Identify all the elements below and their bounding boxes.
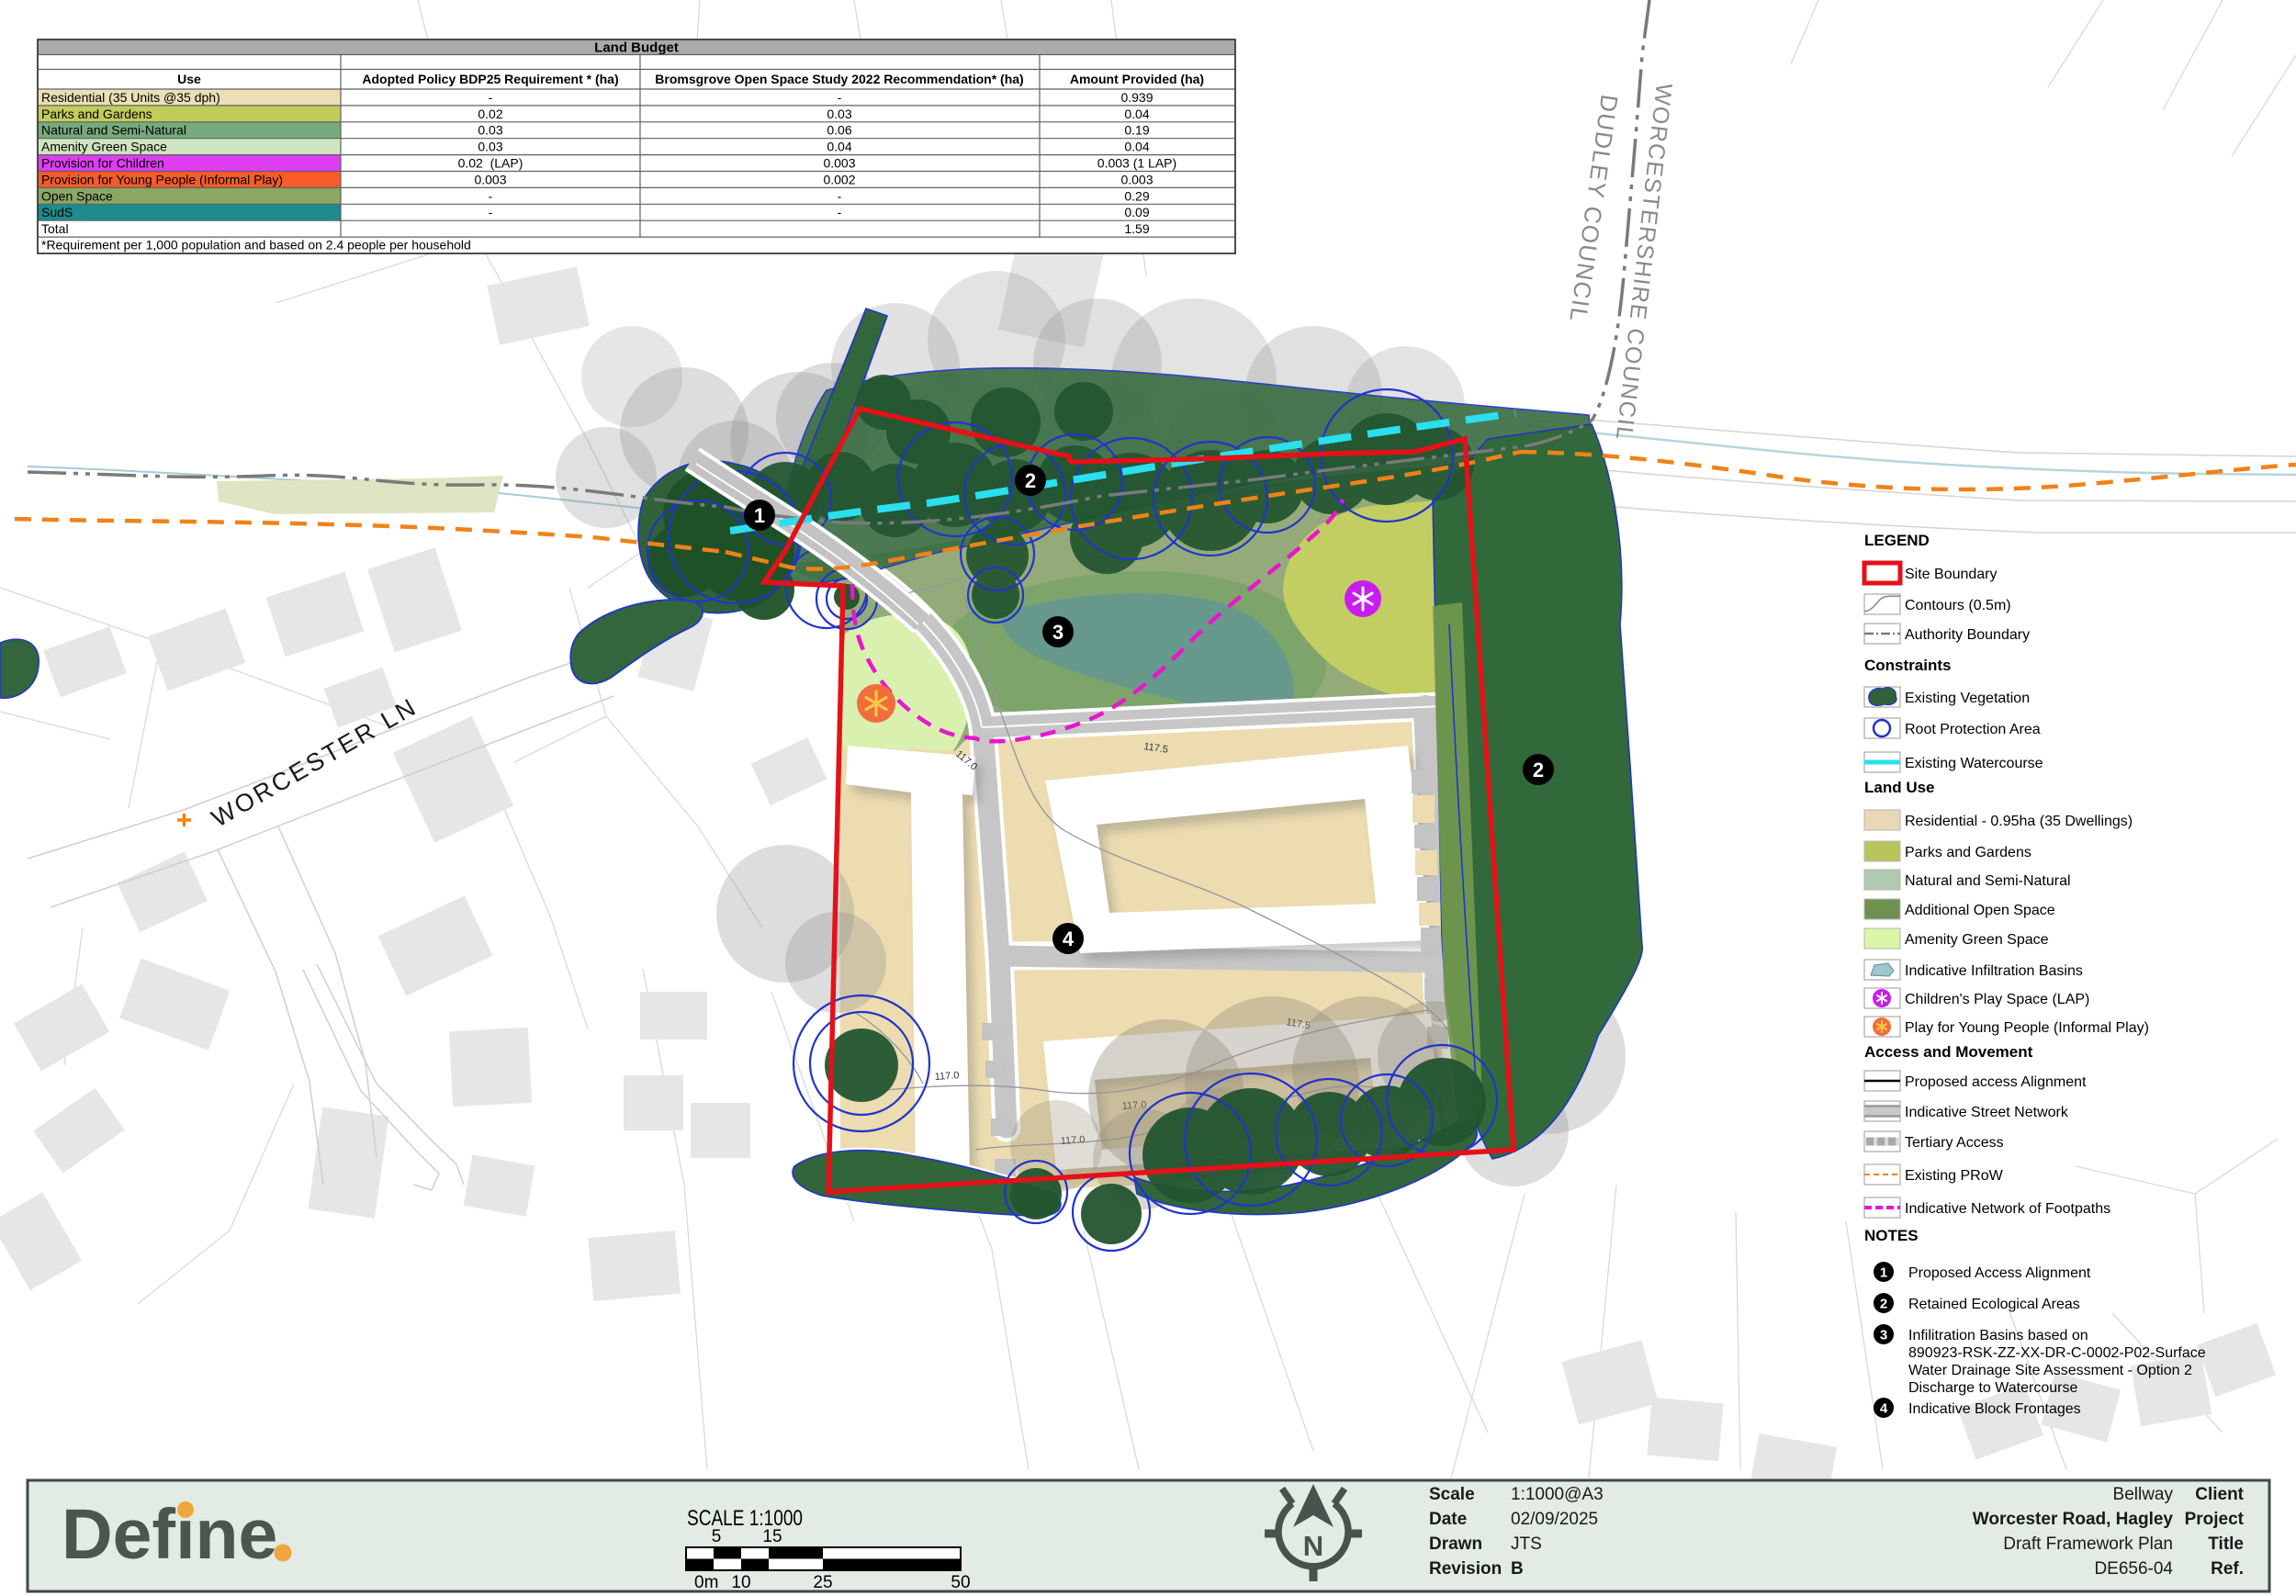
svg-text:DE656-04: DE656-04 (2094, 1559, 2173, 1579)
svg-text:Drawn: Drawn (1429, 1534, 1482, 1554)
svg-text:0.04: 0.04 (1124, 107, 1149, 121)
svg-text:2: 2 (1025, 469, 1036, 492)
svg-text:Bromsgrove Open Space Study 20: Bromsgrove Open Space Study 2022 Recomme… (655, 72, 1023, 86)
svg-text:Total: Total (41, 221, 69, 236)
svg-text:2: 2 (1533, 759, 1544, 781)
svg-text:0.02: 0.02 (478, 107, 502, 121)
svg-text:*Requirement per 1,000 populat: *Requirement per 1,000 population and ba… (41, 238, 471, 253)
svg-text:Defıne: Defıne (62, 1495, 277, 1574)
svg-text:0.003: 0.003 (1120, 172, 1153, 186)
svg-text:-: - (838, 90, 842, 105)
svg-text:1.59: 1.59 (1124, 221, 1149, 236)
svg-text:Open Space: Open Space (41, 188, 113, 203)
svg-text:Use: Use (177, 72, 201, 86)
svg-text:117.0: 117.0 (934, 1070, 959, 1083)
svg-text:5: 5 (712, 1527, 722, 1546)
svg-text:0.003: 0.003 (823, 156, 855, 171)
svg-text:25: 25 (813, 1573, 832, 1592)
svg-text:Residential - 0.95ha (35 Dwell: Residential - 0.95ha (35 Dwellings) (1905, 814, 2133, 829)
svg-text:Proposed access Alignment: Proposed access Alignment (1905, 1074, 2087, 1090)
svg-text:Root Protection Area: Root Protection Area (1905, 722, 2041, 737)
svg-text:Amenity Green Space: Amenity Green Space (1905, 932, 2049, 948)
svg-text:Existing PRoW: Existing PRoW (1905, 1168, 2004, 1184)
svg-text:Draft Framework Plan: Draft Framework Plan (2003, 1534, 2173, 1554)
svg-text:0.003 (1 LAP): 0.003 (1 LAP) (1097, 156, 1176, 171)
svg-text:LEGEND: LEGEND (1864, 532, 1930, 549)
svg-text:1: 1 (754, 504, 765, 527)
svg-text:-: - (838, 188, 842, 203)
svg-text:Tertiary Access: Tertiary Access (1905, 1135, 2004, 1151)
svg-text:Bellway: Bellway (2113, 1485, 2174, 1504)
svg-text:Adopted Policy BDP25 Requireme: Adopted Policy BDP25 Requirement * (ha) (362, 72, 618, 86)
svg-text:Indicative Street Network: Indicative Street Network (1905, 1105, 2069, 1120)
svg-text:B: B (1511, 1559, 1524, 1579)
svg-text:1:1000@A3: 1:1000@A3 (1511, 1485, 1604, 1504)
svg-text:Project: Project (2185, 1510, 2245, 1529)
svg-text:Date: Date (1429, 1510, 1467, 1529)
svg-text:Infilitration Basins based on: Infilitration Basins based on (1908, 1328, 2088, 1343)
svg-text:3: 3 (1052, 621, 1064, 644)
svg-text:10: 10 (731, 1573, 750, 1592)
svg-text:Provision for Children: Provision for Children (41, 156, 164, 171)
svg-text:0m: 0m (694, 1573, 718, 1592)
svg-text:0.29: 0.29 (1124, 188, 1149, 203)
svg-text:Indicative Network of Footpath: Indicative Network of Footpaths (1905, 1201, 2110, 1217)
svg-text:Water Drainage Site Assessment: Water Drainage Site Assessment - Option … (1908, 1363, 2192, 1378)
svg-text:0.003: 0.003 (474, 172, 506, 186)
svg-text:Existing Watercourse: Existing Watercourse (1905, 756, 2043, 771)
svg-text:-: - (489, 90, 493, 105)
svg-text:0.03: 0.03 (478, 140, 502, 154)
svg-text:Revision: Revision (1429, 1559, 1502, 1579)
svg-text:JTS: JTS (1511, 1534, 1542, 1554)
svg-text:0.02 (LAP): 0.02 (LAP) (458, 156, 523, 171)
svg-text:Natural and Semi-Natural: Natural and Semi-Natural (41, 123, 186, 138)
svg-text:Additional Open Space: Additional Open Space (1905, 903, 2055, 918)
svg-text:Natural and Semi-Natural: Natural and Semi-Natural (1905, 873, 2071, 889)
svg-text:50: 50 (951, 1573, 970, 1592)
svg-text:Client: Client (2195, 1485, 2244, 1504)
svg-text:0.03: 0.03 (827, 107, 851, 121)
svg-text:Access and Movement: Access and Movement (1864, 1043, 2033, 1061)
svg-text:0.002: 0.002 (823, 172, 855, 186)
svg-text:N: N (1303, 1530, 1323, 1562)
svg-text:-: - (838, 205, 842, 219)
svg-text:Land Budget: Land Budget (594, 40, 679, 56)
svg-text:Parks and Gardens: Parks and Gardens (41, 107, 152, 121)
svg-text:4: 4 (1063, 927, 1075, 950)
svg-text:0.03: 0.03 (478, 123, 502, 138)
svg-text:890923-RSK-ZZ-XX-DR-C-0002-P02: 890923-RSK-ZZ-XX-DR-C-0002-P02-Surface (1908, 1345, 2206, 1361)
svg-text:Amount Provided (ha): Amount Provided (ha) (1070, 72, 1204, 86)
svg-text:Site Boundary: Site Boundary (1905, 567, 1998, 582)
svg-text:SCALE 1:1000: SCALE 1:1000 (687, 1506, 803, 1531)
svg-text:Retained Ecological Areas: Retained Ecological Areas (1908, 1297, 2080, 1312)
svg-text:Children's Play Space (LAP): Children's Play Space (LAP) (1905, 992, 2089, 1007)
svg-text:Title: Title (2208, 1534, 2244, 1554)
svg-text:Indicative Infiltration Basins: Indicative Infiltration Basins (1905, 963, 2083, 979)
svg-text:Constraints: Constraints (1864, 657, 1951, 674)
svg-text:0.09: 0.09 (1124, 205, 1149, 219)
svg-text:0.04: 0.04 (1124, 140, 1149, 154)
svg-text:Provision for Young People (In: Provision for Young People (Informal Pla… (41, 172, 283, 186)
svg-text:15: 15 (762, 1527, 782, 1546)
svg-text:Ref.: Ref. (2211, 1559, 2244, 1579)
svg-text:Authority Boundary: Authority Boundary (1905, 627, 2030, 643)
svg-text:Contours (0.5m): Contours (0.5m) (1905, 598, 2011, 613)
svg-text:Residential (35 Units @35 dph): Residential (35 Units @35 dph) (41, 90, 220, 105)
svg-text:Parks and Gardens: Parks and Gardens (1905, 845, 2032, 860)
svg-text:2: 2 (1880, 1297, 1887, 1312)
svg-text:Indicative Block Frontages: Indicative Block Frontages (1908, 1401, 2081, 1417)
svg-text:Scale: Scale (1429, 1485, 1475, 1504)
svg-text:0.19: 0.19 (1124, 123, 1149, 138)
svg-text:0.04: 0.04 (827, 140, 851, 154)
svg-text:SudS: SudS (41, 205, 73, 219)
svg-text:02/09/2025: 02/09/2025 (1511, 1510, 1598, 1529)
svg-text:0.06: 0.06 (827, 123, 851, 138)
svg-text:-: - (489, 205, 493, 219)
svg-text:Existing Vegetation: Existing Vegetation (1905, 691, 2030, 706)
svg-text:Land Use: Land Use (1864, 779, 1935, 796)
svg-text:1: 1 (1880, 1265, 1887, 1281)
svg-text:NOTES: NOTES (1864, 1227, 1919, 1244)
svg-text:3: 3 (1880, 1328, 1887, 1343)
svg-text:Worcester Road, Hagley: Worcester Road, Hagley (1973, 1510, 2174, 1529)
svg-text:4: 4 (1880, 1401, 1888, 1417)
svg-text:Proposed Access Alignment: Proposed Access Alignment (1908, 1265, 2091, 1281)
svg-text:-: - (489, 188, 493, 203)
svg-text:Play for Young People (Informa: Play for Young People (Informal Play) (1905, 1020, 2149, 1036)
svg-text:Discharge to Watercourse: Discharge to Watercourse (1908, 1380, 2077, 1396)
svg-text:Amenity Green Space: Amenity Green Space (41, 140, 167, 154)
svg-text:0.939: 0.939 (1120, 90, 1153, 105)
